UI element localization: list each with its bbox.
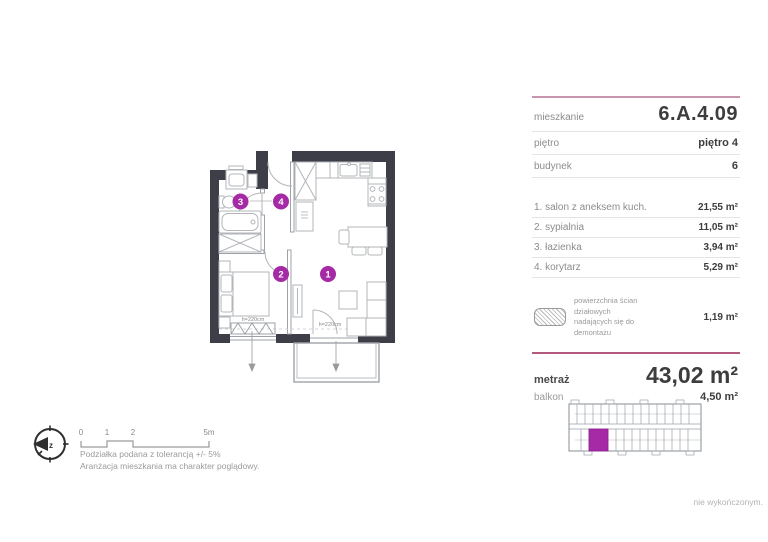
scale-tick-1: 1 (105, 428, 110, 437)
room-area: 21,55 m² (698, 202, 738, 213)
room-label: 4. korytarz (534, 262, 581, 273)
info-row-pietro: piętro piętro 4 (532, 132, 740, 155)
entrance-door-arc (268, 162, 292, 186)
kitchen-fixtures (295, 162, 386, 231)
info-row-budynek: budynek 6 (532, 155, 740, 178)
dining-table (348, 227, 387, 247)
room-area: 5,29 m² (704, 262, 738, 273)
scale-tick-5m: 5m (203, 428, 214, 437)
scale-bar: 0 1 2 5m (79, 428, 215, 447)
room-area: 3,94 m² (704, 242, 738, 253)
arrangement-note: Aranżacja mieszkania ma charakter pogląd… (80, 461, 259, 471)
scale-tick-2: 2 (131, 428, 136, 437)
dining-set (339, 227, 387, 255)
room-area: 11,05 m² (699, 222, 738, 233)
highlighted-unit (589, 429, 608, 451)
badge-living-room: 1 (320, 266, 336, 282)
demolition-note-line1: powierzchnia ścian działowych (574, 296, 637, 316)
balkon-label: balkon (534, 392, 563, 403)
bottom-right-note: nie wykończonym. (694, 497, 763, 507)
floor-plan: h=220cm h=220cm 3 4 (210, 151, 395, 382)
coffee-table (339, 291, 357, 309)
building-overview (569, 400, 701, 455)
balcony-area-value: 4,50 m² (700, 391, 738, 403)
chair (368, 247, 382, 255)
svg-text:1: 1 (325, 269, 331, 280)
badge-bedroom: 2 (273, 266, 289, 282)
mieszkanie-label: mieszkanie (534, 112, 584, 123)
budynek-label: budynek (534, 161, 572, 172)
chair (339, 230, 349, 244)
room-row-lazienka: 3. łazienka 3,94 m² (532, 238, 740, 258)
compass-icon: z (33, 426, 69, 463)
scale-tick-0: 0 (79, 428, 84, 437)
scale-tolerance-note: Podziałka podana z tolerancją +/- 5% (80, 449, 221, 459)
label-box (296, 202, 313, 231)
balcony-row: balkon 4,50 m² (532, 389, 740, 403)
bath-shelf (248, 174, 257, 187)
svg-text:2: 2 (278, 269, 283, 280)
nightstand (219, 261, 230, 272)
pillow (221, 295, 232, 312)
svg-text:4: 4 (278, 197, 284, 208)
balcony-door-height-label: h=220cm (319, 322, 342, 328)
total-area-value: 43,02 m² (646, 362, 738, 389)
info-row-mieszkanie: mieszkanie 6.A.4.09 (532, 98, 740, 132)
metraz-label: metraż (534, 374, 569, 386)
apartment-info-panel: mieszkanie 6.A.4.09 piętro piętro 4 budy… (532, 96, 740, 403)
room-label: 2. sypialnia (534, 222, 584, 233)
floor-value: piętro 4 (698, 137, 738, 149)
balcony-outline (294, 343, 379, 382)
mirror (229, 166, 243, 170)
room-label: 3. łazienka (534, 242, 582, 253)
kitchen-sink (340, 165, 357, 177)
total-area-row: metraż 43,02 m² (532, 354, 740, 389)
hatch-swatch-icon (534, 308, 566, 326)
room-label: 1. salon z aneksem kuch. (534, 202, 647, 213)
room-list: 1. salon z aneksem kuch. 21,55 m² 2. syp… (532, 198, 740, 278)
demolition-area: 1,19 m² (704, 312, 738, 323)
floorplan-sheet: { "colors": { "accent": "#a62aa6", "wall… (0, 0, 768, 542)
room-row-korytarz: 4. korytarz 5,29 m² (532, 258, 740, 278)
pietro-label: piętro (534, 138, 559, 149)
demolition-note: powierzchnia ścian działowych nadających… (532, 296, 740, 338)
nightstand (219, 317, 230, 328)
chair (352, 247, 366, 255)
compass-label: z (49, 441, 53, 450)
svg-text:3: 3 (238, 197, 243, 208)
drawer-unit (360, 164, 370, 176)
apartment-number: 6.A.4.09 (658, 103, 738, 126)
pillow (221, 275, 232, 292)
demolition-note-text: powierzchnia ścian działowych nadających… (574, 296, 672, 338)
room-row-sypialnia: 2. sypialnia 11,05 m² (532, 218, 740, 238)
demolition-note-line2: nadających się do demontażu (574, 317, 634, 337)
badge-hall: 4 (273, 194, 289, 210)
building-value: 6 (732, 160, 738, 172)
badge-bathroom: 3 (233, 194, 249, 210)
room-row-salon: 1. salon z aneksem kuch. 21,55 m² (532, 198, 740, 218)
window-height-label: h=220cm (242, 317, 265, 323)
